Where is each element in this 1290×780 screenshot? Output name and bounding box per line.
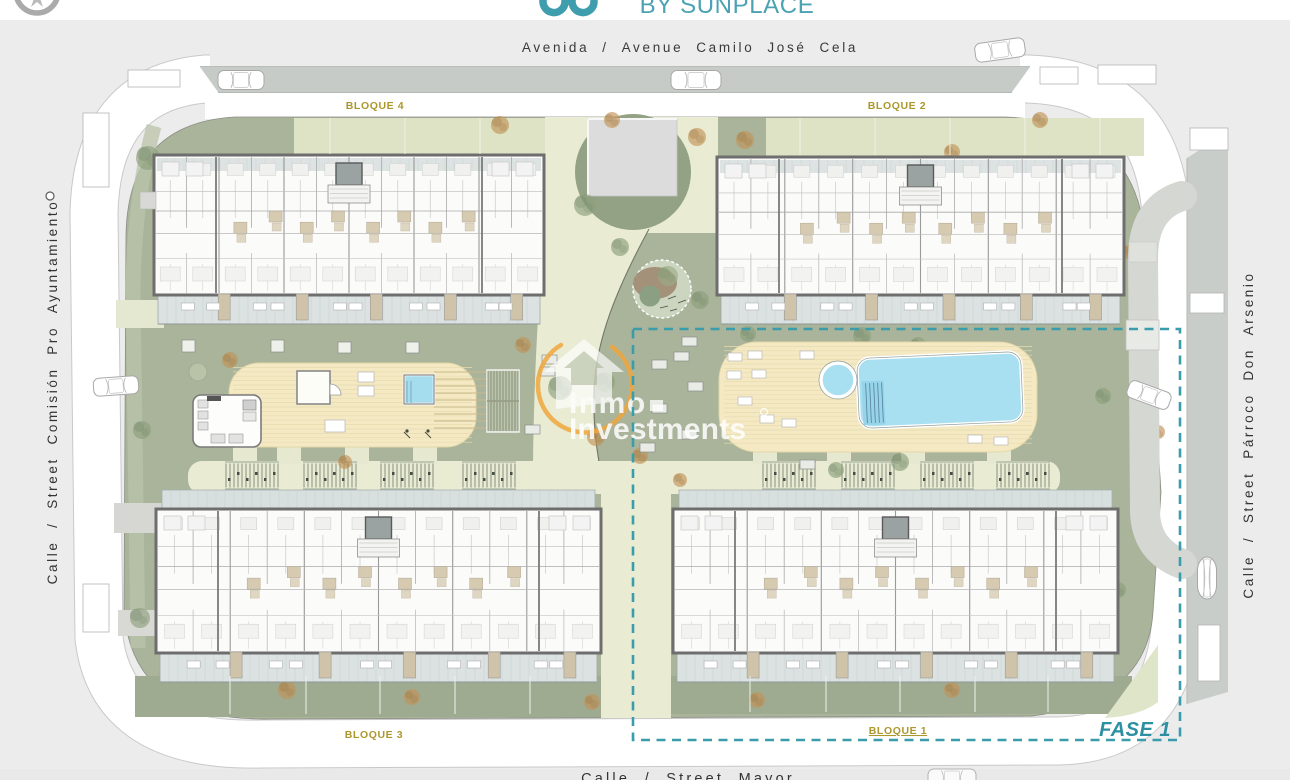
svg-text:Calle / Street Párroco Don: Calle / Street Párroco Don Arsenio: [1241, 271, 1256, 598]
svg-text:BLOQUE 1: BLOQUE 1: [869, 725, 927, 737]
svg-text:BLOQUE 3: BLOQUE 3: [345, 729, 403, 741]
svg-text:BY SUNPLACE: BY SUNPLACE: [640, 0, 815, 19]
svg-text:BLOQUE 2: BLOQUE 2: [868, 100, 926, 112]
svg-text:BLOQUE 4: BLOQUE 4: [346, 100, 404, 112]
svg-text:Investments: Investments: [569, 413, 746, 446]
svg-text:Avenida / Avenue Camilo Jo: Avenida / Avenue Camilo José Cela: [522, 40, 858, 55]
svg-text:FASE 1: FASE 1: [1099, 719, 1171, 741]
svg-text:Calle / Street Mayor: Calle / Street Mayor: [581, 771, 795, 780]
svg-text:Calle / Street Comisión Pr: Calle / Street Comisión Pro Ayuntamiento: [45, 200, 60, 585]
